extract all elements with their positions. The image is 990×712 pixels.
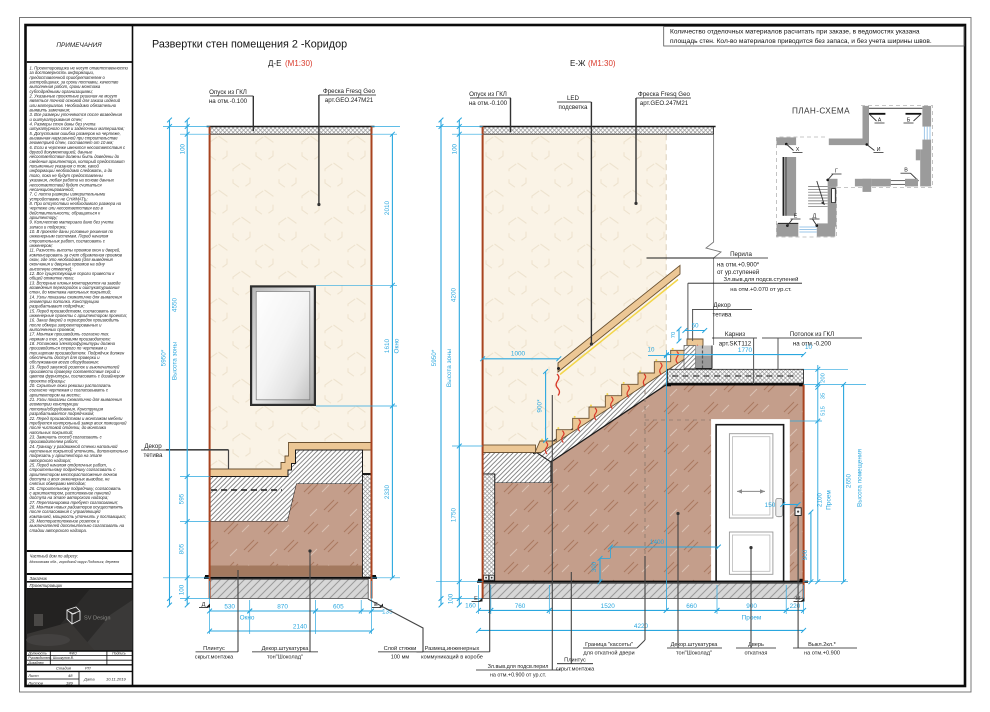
svg-text:189: 189	[66, 681, 73, 686]
svg-text:скрыт.монтажа: скрыт.монтажа	[556, 666, 595, 672]
svg-text:10: 10	[805, 344, 812, 351]
svg-text:Д-Е: Д-Е	[268, 59, 281, 68]
svg-text:Фреска Fresq Geo: Фреска Fresq Geo	[638, 91, 690, 98]
svg-text:48: 48	[68, 673, 73, 678]
svg-text:Декор: Декор	[713, 302, 731, 309]
svg-text:2140: 2140	[293, 624, 308, 631]
svg-text:Декор: Декор	[144, 443, 162, 450]
svg-text:605: 605	[333, 604, 344, 611]
svg-text:LED: LED	[567, 95, 580, 102]
svg-text:4200: 4200	[451, 287, 458, 302]
svg-text:ПЛАН-СХЕМА: ПЛАН-СХЕМА	[792, 107, 850, 116]
svg-text:Количество отделочных материал: Количество отделочных материалов расчита…	[670, 29, 920, 36]
svg-text:Окно: Окно	[240, 615, 255, 622]
svg-text:тетива: тетива	[713, 312, 733, 319]
svg-text:Опуск из ГКЛ: Опуск из ГКЛ	[469, 91, 507, 98]
svg-text:Окно: Окно	[394, 338, 401, 353]
svg-text:Дизайнер: Дизайнер	[27, 661, 43, 665]
svg-text:Фреска Fresq Geo: Фреска Fresq Geo	[323, 88, 375, 95]
svg-text:арт.GEO.247М21: арт.GEO.247М21	[325, 97, 374, 104]
svg-text:Московская обл., городской окр: Московская обл., городской округ Подольс…	[30, 560, 120, 564]
svg-text:Должность: Должность	[27, 652, 47, 656]
svg-text:РП: РП	[85, 666, 91, 671]
svg-text:35: 35	[821, 393, 827, 399]
svg-text:тон"Шоколад": тон"Шоколад"	[676, 651, 712, 657]
svg-text:Развертки стен помещения 2 -Ко: Развертки стен помещения 2 -Коридор	[152, 39, 347, 51]
svg-text:Перила: Перила	[730, 251, 752, 258]
svg-text:515: 515	[821, 406, 827, 416]
svg-text:на отм.+0.900: на отм.+0.900	[804, 651, 840, 657]
svg-text:Проем: Проем	[826, 490, 833, 510]
svg-text:Стадия: Стадия	[56, 666, 72, 671]
svg-text:на отм.+0.900*: на отм.+0.900*	[717, 262, 760, 269]
svg-text:100: 100	[451, 143, 458, 154]
svg-text:660: 660	[686, 603, 697, 610]
svg-text:150: 150	[765, 502, 776, 509]
svg-text:4550: 4550	[172, 297, 179, 312]
svg-text:на отм.-0.200: на отм.-0.200	[793, 341, 832, 348]
svg-text:760: 760	[515, 603, 526, 610]
svg-text:2010: 2010	[384, 200, 391, 215]
svg-text:ФИО: ФИО	[69, 652, 77, 656]
svg-text:2100: 2100	[817, 492, 824, 507]
svg-text:ПРИМЕЧАНИЯ: ПРИМЕЧАНИЯ	[56, 42, 102, 49]
svg-text:В: В	[904, 168, 908, 174]
svg-text:Е-Ж: Е-Ж	[570, 59, 586, 68]
svg-text:300: 300	[591, 561, 598, 572]
svg-text:Заказчик: Заказчик	[30, 576, 48, 581]
svg-text:на отм.+0.070 от ур.ст.: на отм.+0.070 от ур.ст.	[730, 287, 792, 293]
svg-text:Опуск из ГКЛ: Опуск из ГКЛ	[209, 89, 247, 96]
svg-text:160: 160	[465, 603, 476, 610]
svg-text:1750: 1750	[451, 507, 458, 522]
svg-text:на отм.+0.900 от ур.ст.: на отм.+0.900 от ур.ст.	[490, 673, 546, 679]
svg-text:1610: 1610	[384, 338, 391, 353]
svg-text:Руководитель: Руководитель	[28, 656, 51, 660]
svg-text:900*: 900*	[537, 399, 544, 413]
svg-text:Шишкунов В.: Шишкунов В.	[53, 656, 74, 660]
svg-text:Г: Г	[835, 168, 838, 174]
svg-text:Дата: Дата	[83, 677, 95, 682]
svg-text:от ур.ступеней: от ур.ступеней	[717, 269, 760, 276]
svg-text:Размещ.инженерных: Размещ.инженерных	[425, 646, 480, 652]
svg-text:5950*: 5950*	[431, 349, 438, 366]
svg-text:595: 595	[179, 493, 186, 504]
svg-text:Потолок из ГКЛ: Потолок из ГКЛ	[790, 331, 834, 338]
svg-text:Слой стяжки: Слой стяжки	[384, 645, 417, 652]
svg-text:на отм.-0.100: на отм.-0.100	[209, 98, 248, 105]
svg-text:Зл.выв.для подсв.перил: Зл.выв.для подсв.перил	[488, 664, 549, 670]
svg-text:Граница "кассеты": Граница "кассеты"	[585, 642, 633, 648]
svg-text:100 мм: 100 мм	[391, 655, 410, 661]
svg-text:тетива: тетива	[144, 452, 164, 459]
svg-text:Проектировщик: Проектировщик	[30, 583, 64, 588]
svg-text:50: 50	[691, 323, 699, 330]
svg-text:Плинтус: Плинтус	[564, 658, 586, 664]
svg-text:1770: 1770	[738, 347, 753, 354]
svg-text:на отм.-0.100: на отм.-0.100	[469, 100, 508, 107]
svg-text:1400: 1400	[650, 539, 665, 546]
svg-text:1520: 1520	[601, 603, 616, 610]
svg-text:70: 70	[671, 332, 677, 338]
svg-text:530: 530	[224, 604, 235, 611]
svg-text:200: 200	[821, 373, 827, 383]
svg-text:откатная: откатная	[745, 651, 768, 657]
svg-text:Высота помещения: Высота помещения	[857, 448, 864, 507]
svg-text:Подпись: Подпись	[112, 652, 126, 656]
svg-text:2330: 2330	[384, 484, 391, 499]
svg-text:(М1:30): (М1:30)	[588, 59, 616, 68]
svg-text:900: 900	[802, 549, 809, 560]
svg-text:Карниз: Карниз	[725, 331, 745, 338]
svg-text:(М1:30): (М1:30)	[285, 59, 313, 68]
svg-text:220: 220	[790, 603, 801, 610]
svg-text:площадь стен. Кол-во материало: площадь стен. Кол-во материалов приводит…	[670, 37, 932, 45]
svg-text:тон"Шоколад": тон"Шоколад"	[267, 655, 303, 661]
svg-text:Декор.штукатурка: Декор.штукатурка	[262, 646, 310, 652]
svg-text:коммуникаций в коробе: коммуникаций в коробе	[421, 654, 483, 661]
svg-text:100: 100	[179, 584, 186, 595]
svg-text:100: 100	[448, 593, 455, 604]
svg-text:SV Design: SV Design	[84, 616, 110, 622]
svg-text:Лист: Лист	[27, 673, 39, 678]
svg-text:Плинтус: Плинтус	[203, 646, 225, 652]
svg-text:Листов: Листов	[27, 681, 43, 686]
svg-text:Выкл.2кл.*: Выкл.2кл.*	[808, 642, 837, 648]
svg-text:870: 870	[277, 604, 288, 611]
svg-text:2650: 2650	[846, 473, 853, 488]
svg-text:Частный дом по адресу:: Частный дом по адресу:	[30, 554, 79, 559]
svg-text:4220: 4220	[634, 623, 649, 630]
svg-text:Зл.выв.для подсв.ступеней: Зл.выв.для подсв.ступеней	[724, 276, 799, 283]
svg-text:100: 100	[180, 143, 187, 154]
svg-text:805: 805	[179, 543, 186, 554]
svg-text:стадии авторского надзора.: стадии авторского надзора.	[30, 528, 87, 533]
svg-text:скрыт.монтажа: скрыт.монтажа	[195, 655, 234, 661]
svg-text:10: 10	[648, 347, 655, 354]
svg-text:10.11.2019: 10.11.2019	[106, 677, 126, 682]
svg-text:Высота зоны: Высота зоны	[446, 348, 453, 387]
svg-text:подсветка: подсветка	[559, 104, 588, 111]
svg-text:для откатной двери: для откатной двери	[583, 650, 634, 657]
svg-text:Высота зоны: Высота зоны	[172, 341, 179, 380]
svg-text:5950*: 5950*	[161, 349, 168, 366]
svg-text:1000: 1000	[511, 351, 526, 358]
svg-text:900: 900	[746, 603, 757, 610]
svg-text:арт.GEO.247М21: арт.GEO.247М21	[640, 100, 689, 107]
